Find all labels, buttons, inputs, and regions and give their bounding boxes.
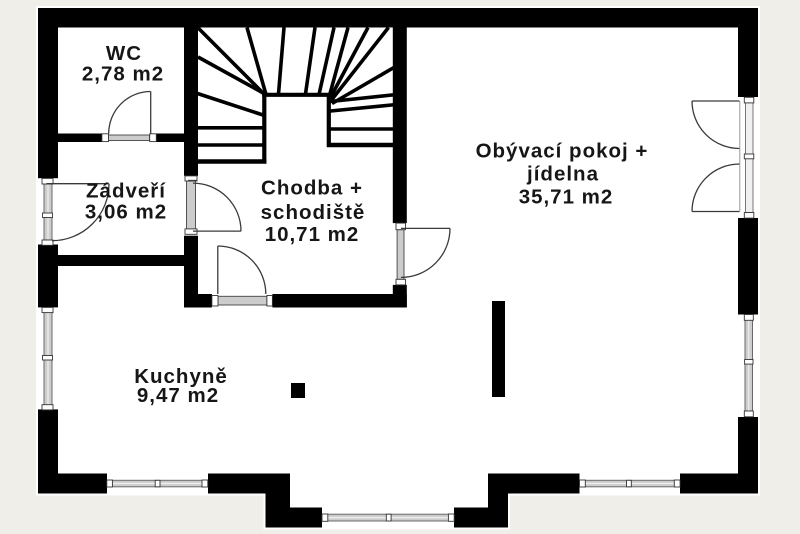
svg-text:Zádveří: Zádveří (86, 179, 166, 202)
svg-text:jídelna: jídelna (526, 163, 599, 186)
svg-text:Chodba +: Chodba + (261, 177, 363, 200)
svg-text:Obývací pokoj +: Obývací pokoj + (476, 140, 649, 163)
svg-text:3,06 m2: 3,06 m2 (85, 200, 167, 223)
svg-text:schodiště: schodiště (261, 201, 366, 224)
svg-text:10,71 m2: 10,71 m2 (265, 223, 360, 246)
svg-text:2,78 m2: 2,78 m2 (82, 62, 164, 85)
svg-text:9,47 m2: 9,47 m2 (137, 384, 219, 407)
svg-text:35,71 m2: 35,71 m2 (519, 186, 614, 209)
